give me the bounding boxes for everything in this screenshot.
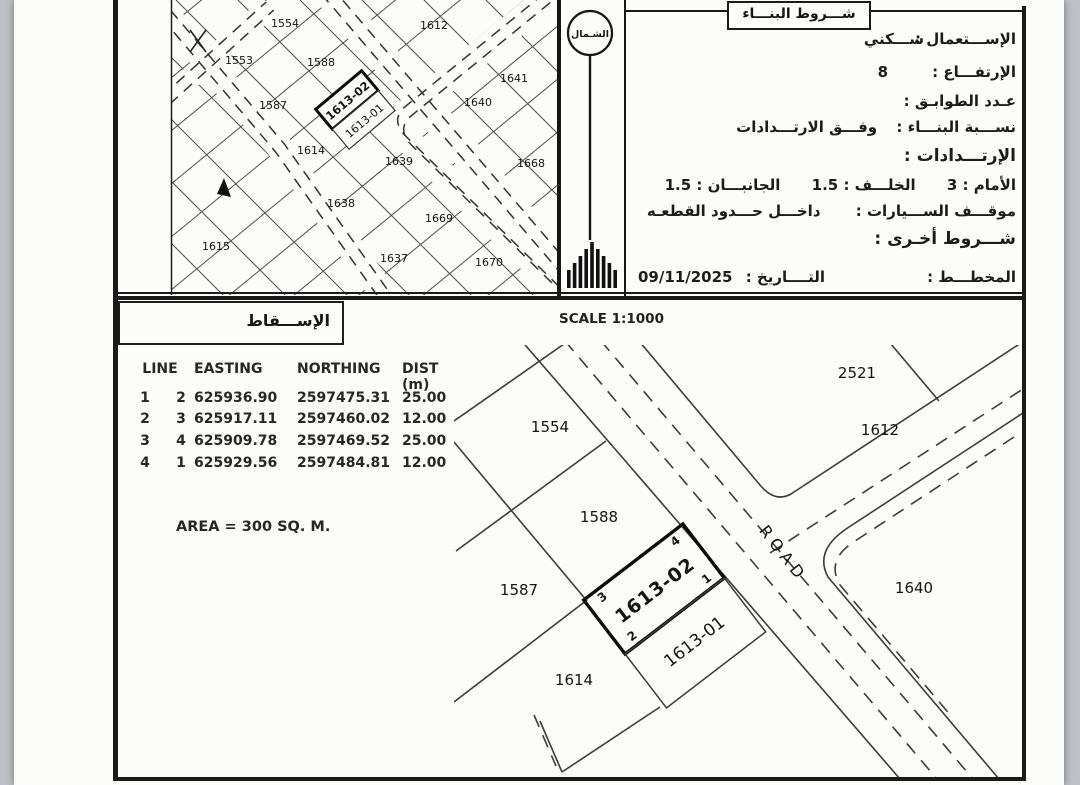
plot-label: 2521 — [838, 364, 876, 382]
plot-label: 1615 — [202, 240, 230, 253]
detail-plot-labels: 2521 1612 1554 1588 1587 1614 1640 — [500, 364, 933, 689]
frame-left-border — [113, 0, 118, 781]
sides-label: الجانبـــان : — [696, 176, 780, 194]
cell: 2597469.52 — [297, 433, 407, 449]
plot-label: 1612 — [420, 19, 448, 32]
condition-row-ratio: نســـبة البنـــاء : وفـــق الارتـــدادات — [632, 118, 1016, 136]
plot-label: 1638 — [327, 197, 355, 210]
area-label: AREA = 300 SQ. M. — [176, 519, 330, 535]
sides-value: 1.5 — [665, 176, 692, 194]
date-group: التــــاريخ : 09/11/2025 — [638, 268, 825, 286]
condition-row-parking: موقـــف الســـيارات : داخـــل حـــدود ال… — [632, 202, 1016, 220]
floors-label: عـدد الطوابـق : — [904, 92, 1016, 110]
cell: 3 — [134, 433, 156, 449]
condition-row-height: الإرتفـــاع : 8 — [632, 63, 1016, 81]
cell: 4 — [134, 455, 156, 471]
north-label: الشـمال — [571, 29, 609, 40]
detail-map: 1613-02 1613-01 1 2 3 4 ROAD 2521 1612 1… — [454, 345, 1026, 779]
condition-row-use: الإســـتعمال : ســـكني — [632, 30, 1016, 48]
detail-highlight-plot: 1613-02 1613-01 1 2 3 4 — [584, 524, 766, 708]
parking-label: موقـــف الســـيارات : — [856, 202, 1016, 220]
north-arrow-base-bars — [567, 242, 617, 288]
setbacks-title: الإرتـــدادات : — [904, 146, 1016, 166]
cell: 625909.78 — [194, 433, 294, 449]
cell: 625917.11 — [194, 411, 294, 427]
north-panel: الشـمال — [557, 0, 626, 297]
plot-label: 1640 — [464, 96, 492, 109]
plot-label: 1554 — [271, 17, 299, 30]
cell: 625929.56 — [194, 455, 294, 471]
coords-table-row: 3 4 625909.78 2597469.52 25.00 — [132, 433, 477, 451]
coords-table-row: 4 1 625929.56 2597484.81 12.00 — [132, 455, 477, 473]
projection-header-label: الإســـقاط — [246, 311, 330, 330]
scale-label: SCALE 1:1000 — [559, 311, 664, 327]
frame-bottom-border — [113, 777, 1026, 781]
projection-header-box: الإســـقاط — [118, 301, 344, 345]
cell: 3 — [170, 411, 192, 427]
other-conditions-label: شـــروط أخـرى : — [874, 229, 1016, 249]
plot-label: 1587 — [500, 581, 538, 599]
date-value: 09/11/2025 — [638, 268, 732, 286]
date-label: التــــاريخ : — [746, 268, 825, 286]
detail-highlight-label: 1613-02 — [611, 553, 699, 628]
plot-label: 1614 — [555, 671, 593, 689]
col-easting: EASTING — [194, 361, 294, 377]
detail-adjacent-label: 1613-01 — [661, 613, 730, 672]
height-value: 8 — [878, 63, 888, 81]
coords-table-header: LINE EASTING NORTHING DIST (m) — [132, 361, 477, 379]
col-northing: NORTHING — [297, 361, 407, 377]
section-divider — [113, 296, 1026, 300]
cell: 2597475.31 — [297, 390, 407, 406]
back-label: الخلـــف : — [843, 176, 915, 194]
plot-label: 1588 — [307, 56, 335, 69]
conditions-header: شـــروط البنـــاء — [727, 1, 871, 30]
plot-label: 1553 — [225, 54, 253, 67]
ratio-value: وفـــق الارتـــدادات — [736, 118, 877, 136]
cell: 4 — [170, 433, 192, 449]
use-value: ســـكني — [864, 30, 924, 48]
plot-label: 1588 — [580, 508, 618, 526]
plot-label: 1614 — [297, 144, 325, 157]
building-conditions-panel: شـــروط البنـــاء الإســـتعمال : ســـكني… — [626, 0, 1024, 295]
cell: 2 — [170, 390, 192, 406]
ratio-label: نســـبة البنـــاء : — [896, 118, 1016, 136]
coords-table-row: 1 2 625936.90 2597475.31 25.00 — [132, 390, 477, 408]
plot-label: 1641 — [500, 72, 528, 85]
landmark-marker — [217, 178, 231, 197]
condition-row-footer: المخطـــط : التــــاريخ : 09/11/2025 — [632, 268, 1016, 286]
north-arrow: الشـمال — [561, 0, 623, 297]
use-label: الإســـتعمال : — [915, 30, 1016, 48]
front-value: 3 — [947, 176, 957, 194]
cell: 625936.90 — [194, 390, 294, 406]
coords-table-row: 2 3 625917.11 2597460.02 12.00 — [132, 411, 477, 429]
road-label: ROAD — [755, 521, 811, 585]
cell: 2 — [134, 411, 156, 427]
plot-label: 1669 — [425, 212, 453, 225]
cell: 1 — [134, 390, 156, 406]
plot-label: 1554 — [531, 418, 569, 436]
condition-row-setbacks-title: الإرتـــدادات : — [632, 146, 1016, 166]
condition-row-setback-values: الأمام : 3 الخلـــف : 1.5 الجانبـــان : … — [632, 176, 1016, 194]
frame-right-border — [1022, 6, 1026, 781]
conditions-header-label: شـــروط البنـــاء — [742, 6, 855, 22]
plan-label: المخطـــط : — [927, 268, 1016, 286]
condition-row-other: شـــروط أخـرى : — [632, 229, 1016, 249]
condition-row-floors: عـدد الطوابـق : — [632, 92, 1016, 110]
scanned-plan-page: 1613-02 1613-01 1554 1553 1588 1612 1641… — [14, 0, 1064, 785]
corner-1: 1 — [699, 571, 714, 587]
parking-value: داخـــل حـــدود القطعـه — [647, 202, 821, 220]
corner-2: 2 — [625, 628, 640, 644]
cell: 2597460.02 — [297, 411, 407, 427]
corner-4: 4 — [668, 533, 683, 549]
cell: 1 — [170, 455, 192, 471]
plot-label: 1612 — [861, 421, 899, 439]
plot-label: 1640 — [895, 579, 933, 597]
front-label: الأمام : — [963, 176, 1016, 194]
cell: 2597484.81 — [297, 455, 407, 471]
back-value: 1.5 — [812, 176, 839, 194]
col-line: LINE — [134, 361, 186, 377]
plot-label: 1668 — [517, 157, 545, 170]
height-label: الإرتفـــاع : — [932, 63, 1016, 81]
corner-3: 3 — [595, 589, 610, 605]
overview-map: 1613-02 1613-01 1554 1553 1588 1612 1641… — [118, 0, 559, 295]
plot-label: 1639 — [385, 155, 413, 168]
plot-label: 1670 — [475, 256, 503, 269]
detail-plot-lines — [454, 345, 1026, 779]
plot-label: 1587 — [259, 99, 287, 112]
plot-label: 1637 — [380, 252, 408, 265]
section-divider-thin — [118, 292, 1024, 294]
